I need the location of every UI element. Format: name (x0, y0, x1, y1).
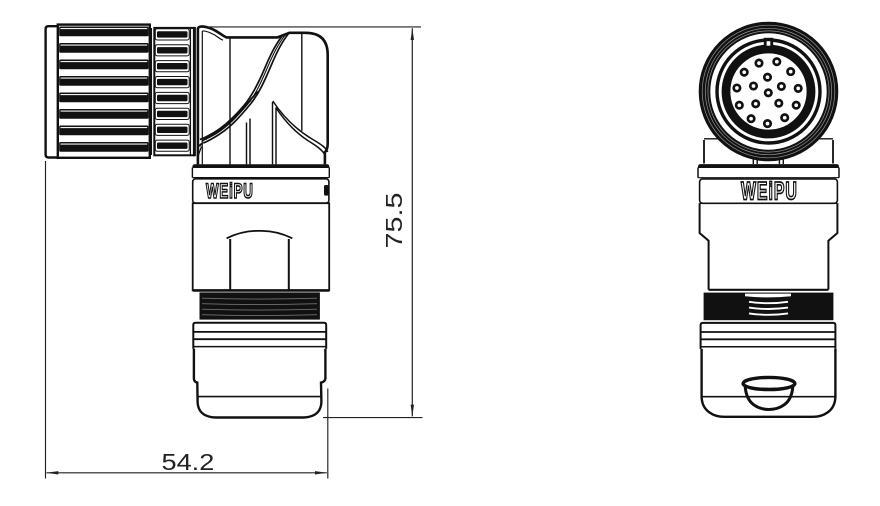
svg-text:WEiPU: WEiPU (741, 178, 798, 205)
svg-text:WEiPU: WEiPU (206, 179, 254, 203)
svg-text:75.5: 75.5 (381, 193, 408, 249)
svg-text:54.2: 54.2 (162, 450, 215, 476)
